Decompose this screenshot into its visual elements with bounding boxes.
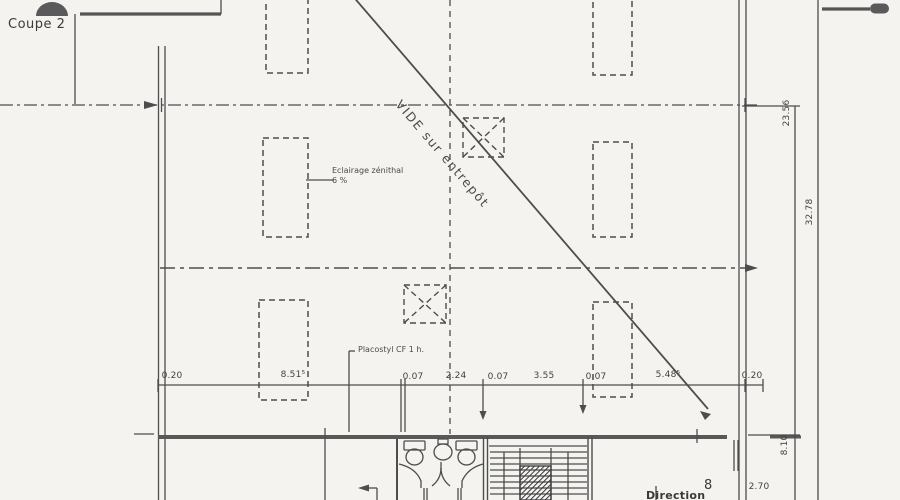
- dim-bottom-5: 3.55: [534, 371, 555, 381]
- skylights: [259, 0, 632, 400]
- dim-bottom-3: 2.24: [446, 371, 467, 381]
- dim-right-upper: 23.56: [782, 93, 792, 133]
- stair-block: [489, 437, 592, 500]
- dim-bottom-2: 0.07: [403, 372, 424, 382]
- dim-bottom-6: 0.07: [586, 372, 607, 382]
- axis-lines: [0, 0, 758, 434]
- dim-bottom-8: 0.20: [742, 371, 763, 381]
- skylight-note-line1: Eclairage zénithal: [332, 166, 403, 176]
- toilet-block: [397, 437, 488, 500]
- floor-plan-canvas: Coupe 2 VIDE sur entrepôt Eclairage zéni…: [0, 0, 900, 500]
- dim-door-width: 2.70: [749, 482, 770, 492]
- direction-label: Direction: [646, 489, 705, 500]
- door-mark: 8: [704, 478, 712, 493]
- dim-right-overall: 32.78: [805, 192, 815, 232]
- outer-walls: [158, 0, 801, 500]
- dim-bottom-7: 5.48⁵: [656, 370, 681, 380]
- dim-bottom-0: 0.20: [162, 371, 183, 381]
- partition-note: Placostyl CF 1 h.: [358, 345, 424, 355]
- dim-bottom-4: 0.07: [488, 372, 509, 382]
- dim-bottom-1: 8.51⁵: [281, 370, 306, 380]
- plan-linework: [0, 0, 900, 500]
- section-cut-marker-left: [36, 0, 221, 104]
- void-diagonal-line: [351, 0, 711, 420]
- section-cut-marker-right: [822, 4, 889, 14]
- dimension-lines: [134, 0, 818, 500]
- section-label: Coupe 2: [8, 17, 65, 32]
- skylight-note-leader: [306, 177, 336, 183]
- dim-right-lower: 8.10: [780, 425, 790, 465]
- roof-vents: [404, 118, 504, 323]
